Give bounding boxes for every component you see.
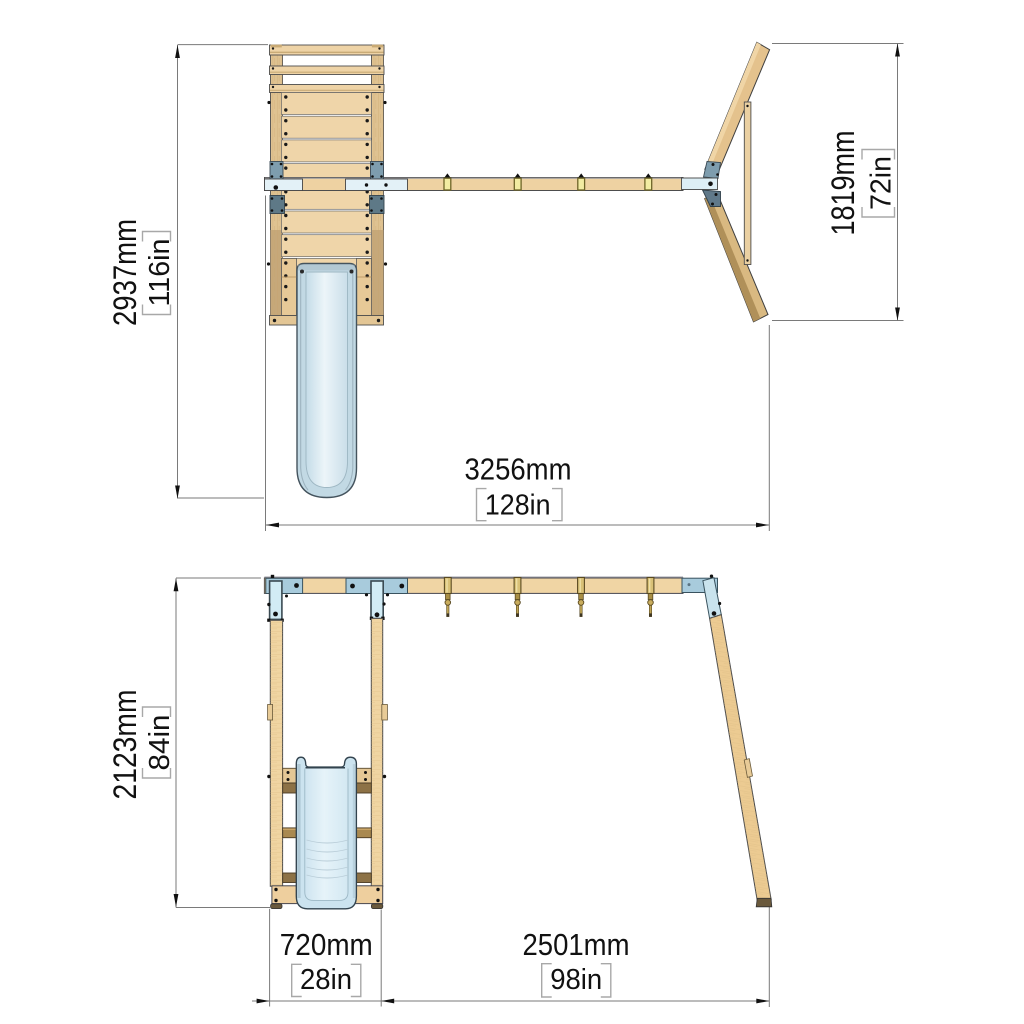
- svg-text:98in: 98in: [550, 964, 602, 996]
- svg-text:3256mm: 3256mm: [465, 452, 572, 487]
- svg-text:2937mm: 2937mm: [107, 219, 143, 326]
- svg-text:128in: 128in: [485, 490, 551, 522]
- svg-text:84in: 84in: [144, 715, 176, 771]
- svg-text:720mm: 720mm: [280, 927, 373, 962]
- svg-text:72in: 72in: [866, 156, 898, 210]
- svg-text:2501mm: 2501mm: [523, 927, 630, 962]
- svg-text:2123mm: 2123mm: [107, 690, 143, 800]
- svg-text:1819mm: 1819mm: [825, 131, 861, 236]
- svg-text:28in: 28in: [300, 964, 352, 996]
- svg-text:116in: 116in: [144, 239, 176, 307]
